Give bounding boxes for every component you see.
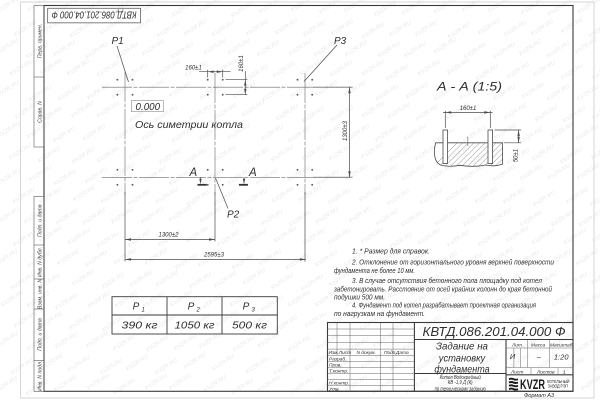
svg-text:Лист: Лист [510, 369, 523, 375]
svg-text:1: 1 [142, 308, 145, 314]
svg-text:ЗАВОД РЭП: ЗАВОД РЭП [548, 384, 568, 389]
svg-text:Инв. N дубл.: Инв. N дубл. [38, 247, 44, 277]
svg-text:КВТД.086.201.04.000 Ф: КВТД.086.201.04.000 Ф [423, 324, 566, 339]
svg-text:Р: Р [133, 302, 140, 313]
svg-text:фундамента не более 10 мм.: фундамента не более 10 мм. [334, 266, 415, 275]
svg-text:Р: Р [188, 302, 195, 313]
svg-text:Масштаб: Масштаб [550, 343, 573, 349]
svg-text:по нагрузкам на фундамент.: по нагрузкам на фундамент. [334, 309, 425, 318]
svg-text:Инв. N подл.: Инв. N подл. [38, 361, 44, 391]
svg-text:КВТД.086.201.04.000 Ф: КВТД.086.201.04.000 Ф [52, 9, 137, 21]
svg-text:Разраб.: Разраб. [329, 356, 346, 362]
svg-text:1:20: 1:20 [554, 353, 569, 362]
svg-text:Дата: Дата [395, 350, 409, 356]
svg-text:1300±3: 1300±3 [343, 120, 349, 141]
svg-text:390 кг: 390 кг [122, 321, 158, 332]
svg-text:Т.контр.: Т.контр. [329, 368, 348, 374]
svg-text:КВ -1,9 Д (К): КВ -1,9 Д (К) [448, 380, 473, 386]
svg-text:установку: установку [438, 354, 486, 365]
svg-text:50±1: 50±1 [514, 149, 520, 162]
svg-text:160±1: 160±1 [460, 106, 477, 112]
svg-text:Изм.Лист: Изм.Лист [329, 350, 352, 356]
svg-text:Перв. примен.: Перв. примен. [38, 24, 44, 58]
svg-text:А: А [189, 167, 198, 179]
svg-text:А: А [248, 167, 257, 179]
svg-text:–: – [536, 352, 542, 361]
svg-text:по техническому заданию: по техническому заданию [435, 387, 486, 393]
svg-text:Взам. инв. N: Взам. инв. N [38, 279, 44, 309]
svg-text:160±1: 160±1 [185, 66, 202, 72]
svg-text:Подп.: Подп. [384, 350, 397, 356]
svg-text:160±1: 160±1 [239, 55, 245, 72]
svg-text:Ось симетрии котла: Ось симетрии котла [135, 119, 243, 131]
svg-text:Формат А3: Формат А3 [524, 393, 555, 399]
svg-text:Задание на: Задание на [436, 342, 488, 353]
svg-text:А - А (1:5): А - А (1:5) [436, 80, 502, 94]
svg-text:И: И [510, 352, 516, 361]
svg-text:Подп. и дата: Подп. и дата [38, 204, 44, 237]
svg-text:Подп. и дата: Подп. и дата [38, 318, 44, 351]
svg-text:Р: Р [243, 302, 250, 313]
svg-text:Справ. N: Справ. N [38, 101, 44, 123]
svg-text:KVZR: KVZR [520, 377, 545, 392]
svg-text:Н.контр.: Н.контр. [329, 380, 349, 386]
svg-text:фундамента: фундамента [434, 363, 490, 375]
svg-text:2595±3: 2595±3 [203, 252, 225, 258]
svg-text:N докум.: N докум. [357, 350, 376, 356]
svg-text:Масса: Масса [531, 343, 546, 349]
svg-text:1050 кг: 1050 кг [175, 321, 215, 332]
svg-text:Лит.: Лит. [511, 343, 523, 349]
svg-text:1. * Размер для справок.: 1. * Размер для справок. [352, 247, 430, 256]
svg-text:Р3: Р3 [334, 36, 347, 47]
svg-text:1: 1 [563, 369, 566, 375]
svg-text:1300±2: 1300±2 [159, 233, 180, 239]
svg-text:2: 2 [196, 308, 201, 314]
svg-text:Листов: Листов [536, 369, 555, 375]
svg-text:Утв.: Утв. [329, 386, 340, 392]
svg-text:Пров.: Пров. [329, 362, 342, 368]
svg-text:500 кг: 500 кг [232, 321, 267, 332]
svg-text:Р2: Р2 [227, 210, 240, 221]
svg-text:0.000: 0.000 [136, 101, 161, 113]
svg-text:Р1: Р1 [112, 36, 124, 47]
